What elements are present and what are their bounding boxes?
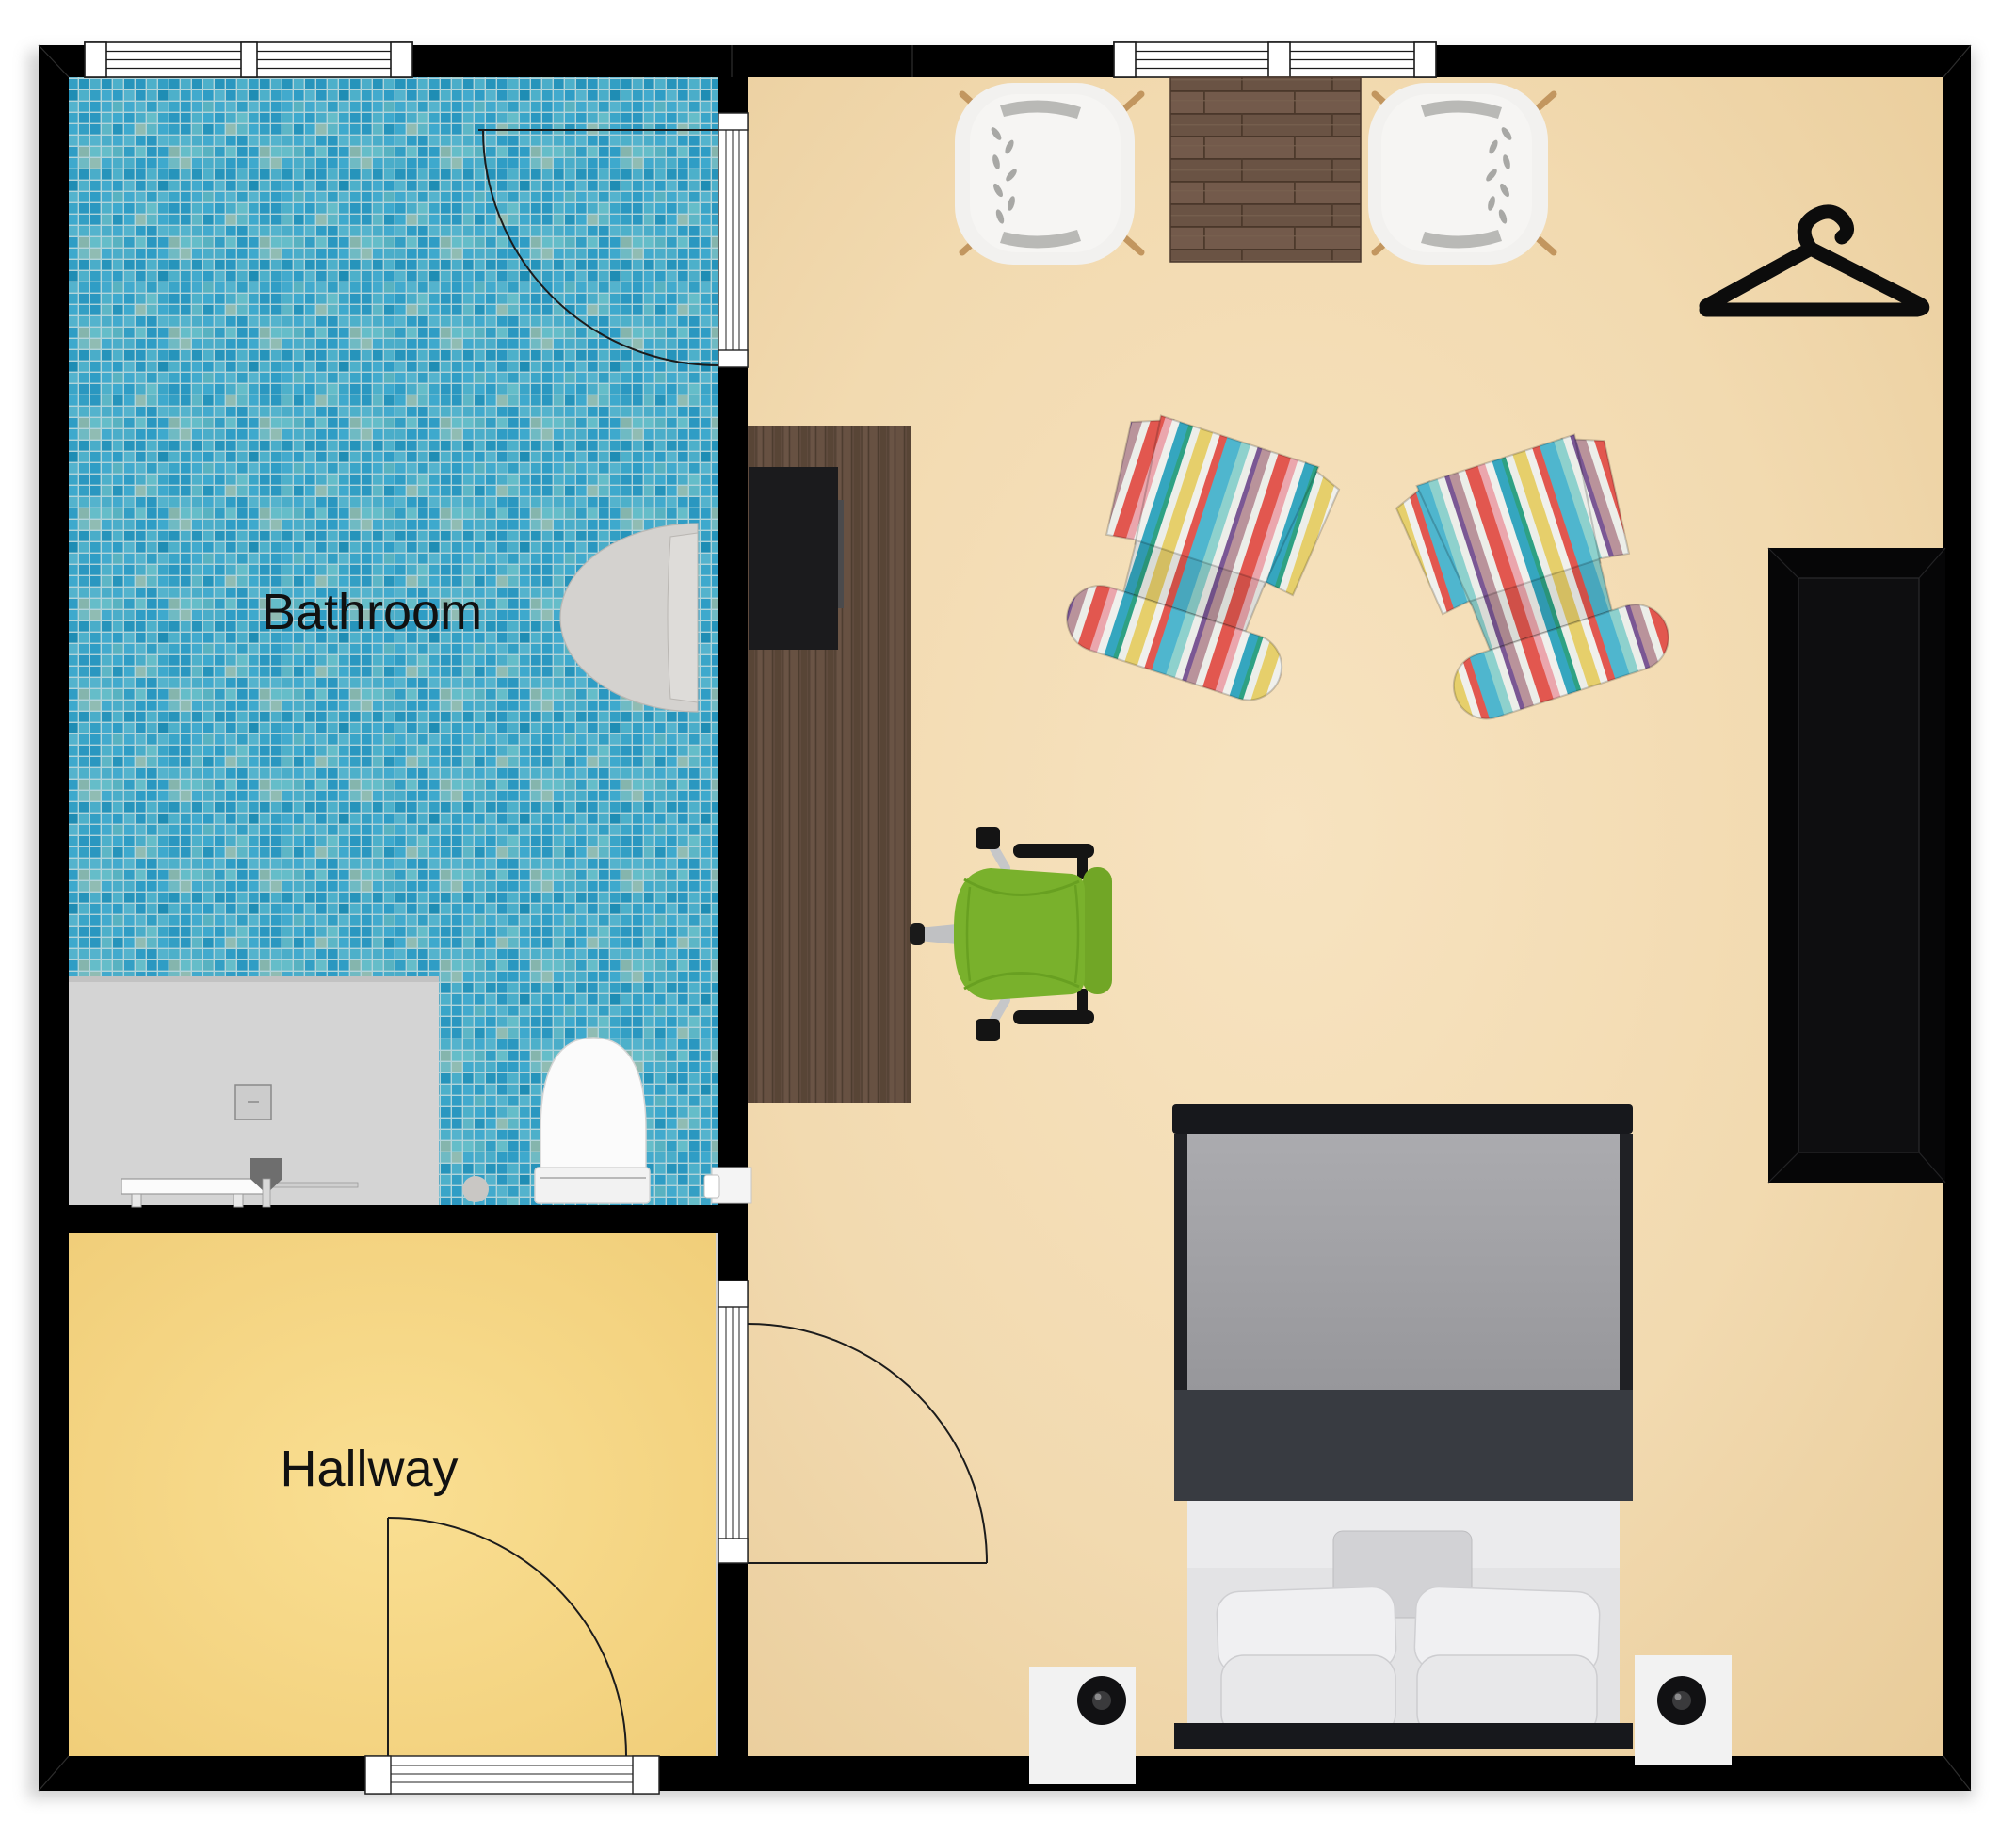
svg-text:Bathroom: Bathroom xyxy=(262,584,482,640)
svg-text:Hallway: Hallway xyxy=(280,1441,458,1497)
